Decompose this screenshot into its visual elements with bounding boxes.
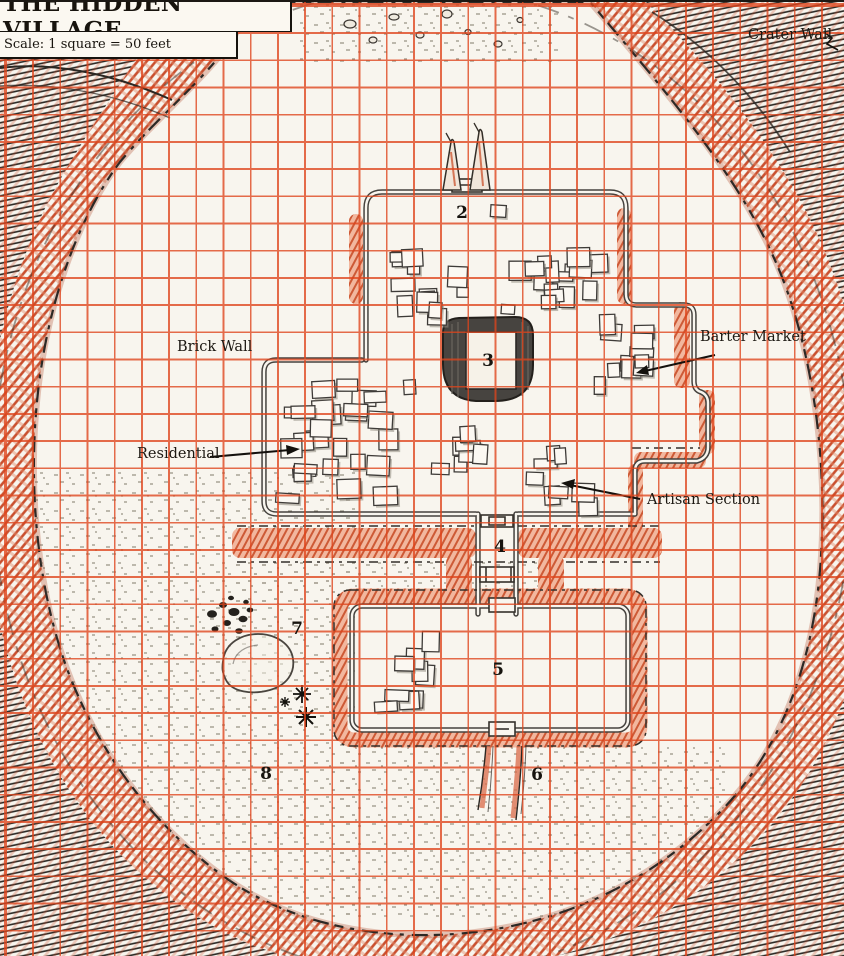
building	[460, 426, 476, 442]
building	[526, 472, 543, 485]
building	[364, 391, 386, 403]
area3-well	[443, 317, 533, 401]
building	[402, 249, 424, 267]
building	[337, 379, 358, 391]
hidden-village-map: THE HIDDEN VILLAGE Scale: 1 square = 50 …	[0, 0, 844, 956]
building	[343, 403, 367, 416]
building	[291, 406, 315, 419]
building	[367, 455, 390, 476]
building	[490, 205, 506, 218]
building	[567, 248, 590, 267]
building	[473, 444, 488, 464]
building	[373, 486, 398, 505]
building	[351, 454, 366, 469]
building	[391, 278, 415, 291]
building	[541, 295, 556, 309]
building	[397, 295, 413, 316]
building	[403, 380, 416, 395]
building	[334, 438, 347, 456]
building	[457, 288, 468, 298]
area5-north-gate	[489, 598, 515, 612]
map-artwork	[0, 2, 844, 956]
building	[337, 479, 361, 499]
building	[594, 377, 605, 395]
building	[599, 314, 615, 335]
building	[310, 419, 331, 437]
building	[429, 302, 443, 318]
gate4-mid	[480, 567, 514, 582]
building	[395, 656, 414, 671]
pond	[222, 634, 293, 692]
building	[374, 701, 397, 713]
building	[554, 448, 566, 465]
building	[583, 281, 597, 300]
building	[549, 486, 569, 499]
building	[323, 459, 339, 475]
building	[422, 631, 439, 652]
building	[379, 429, 398, 450]
building	[368, 411, 393, 429]
building	[447, 266, 467, 287]
plant-star-icon	[280, 697, 290, 707]
building	[276, 493, 300, 504]
plant-star-icon	[296, 707, 316, 727]
building	[501, 304, 515, 314]
building	[631, 333, 653, 349]
area5-earthwork	[340, 596, 640, 740]
building	[607, 363, 620, 377]
building	[525, 261, 544, 276]
building	[294, 464, 317, 475]
building	[431, 463, 449, 475]
building	[385, 690, 409, 702]
building	[312, 380, 336, 398]
